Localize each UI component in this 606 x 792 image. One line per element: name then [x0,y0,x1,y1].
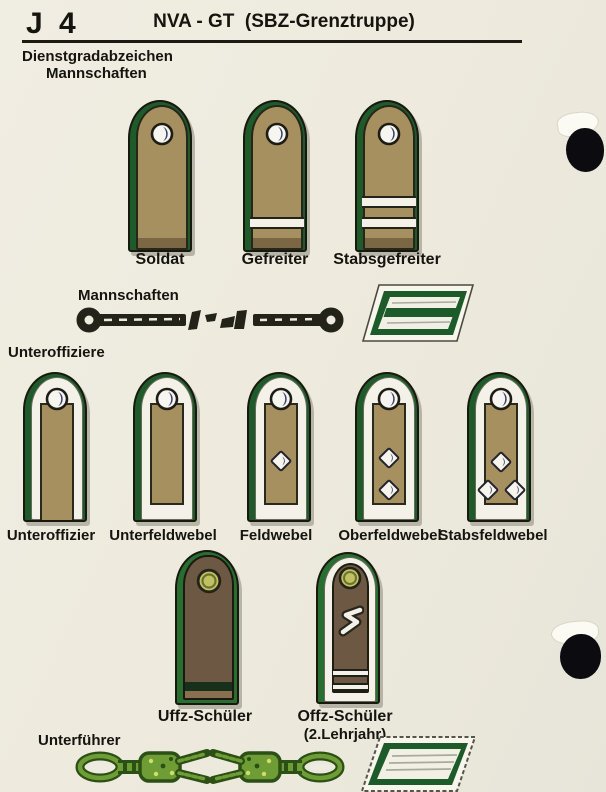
shoulder-board-soldat [128,100,192,252]
board-field [372,403,406,505]
uniform-button-icon [150,122,174,146]
board-field [136,105,188,250]
braid-border [324,557,376,702]
year-stripe [333,669,368,677]
shoulder-cord-dark-icon [76,303,344,337]
rank-label-gefreiter: Gefreiter [215,251,335,269]
rank-label-unterfeldwebel: Unterfeldwebel [98,527,228,544]
board-field [150,403,184,505]
braid-border [255,377,307,520]
rank-stripe [250,217,304,229]
section-label-mannschaften: Mannschaften [78,287,179,304]
year-stripe [333,683,368,691]
shoulder-board-feldwebel [247,372,311,522]
scanned-insignia-page: J 4 NVA - GT (SBZ-Grenztruppe) Dienstgra… [0,0,606,792]
rank-band [185,682,232,691]
rank-pip-icon [376,445,402,471]
braid-border [363,377,415,520]
shoulder-board-unterfeldwebel [133,372,197,522]
knot-cord-green-icon [72,746,348,788]
rank-label-offz-schueler: Offz-Schüler [275,708,415,726]
rank-label-stabsgefreiter: Stabsgefreiter [322,251,452,269]
shoulder-board-offz-schueler [316,552,380,704]
uniform-button-icon [269,387,293,411]
uniform-button-icon [489,387,513,411]
board-field [40,403,74,520]
shoulder-board-unteroffizier [23,372,87,522]
section-label-unteroffiziere: Unteroffiziere [8,344,105,361]
rank-label-stabsfeldwebel: Stabsfeldwebel [428,527,558,544]
braid-border [141,377,193,520]
rank-stripe [362,196,416,208]
rank-pip-icon [376,477,402,503]
uniform-button-icon [338,566,362,590]
rank-label-feldwebel: Feldwebel [211,527,341,544]
rank-pip-icon [268,448,294,474]
board-field [264,403,298,505]
uniform-button-icon [196,568,222,594]
rank-stripe [362,217,416,229]
uniform-button-icon [265,122,289,146]
board-field [484,403,518,505]
board-field [363,105,415,250]
header-rule [22,40,522,43]
board-field [251,105,303,250]
uniform-button-icon [377,122,401,146]
shoulder-board-gefreiter [243,100,307,252]
shoulder-board-oberfeldwebel [355,372,419,522]
rank-pip-icon [502,477,528,503]
rank-label-uffz-schueler: Uffz-Schüler [135,708,275,726]
uniform-button-icon [155,387,179,411]
shoulder-board-stabsfeldwebel [467,372,531,522]
page-title: NVA - GT (SBZ-Grenztruppe) [128,11,440,33]
braid-border [31,377,83,520]
board-field [183,555,234,700]
shoulder-board-stabsgefreiter [355,100,419,252]
page-code: J 4 [26,7,80,41]
punch-hole [566,128,604,172]
collar-patch-enlisted-icon [362,284,474,342]
shoulder-board-uffz-schueler [175,550,239,705]
cipher-s-icon [338,605,364,639]
punch-hole [560,634,601,679]
rank-pip-icon [475,477,501,503]
rank-pip-icon [488,449,514,475]
uniform-button-icon [45,387,69,411]
rank-label-soldat: Soldat [100,251,220,269]
collar-patch-unterfuehrer-icon [361,736,477,792]
uniform-button-icon [377,387,401,411]
braid-border [475,377,527,520]
heading-line1: Dienstgradabzeichen [22,48,173,65]
heading-line2: Mannschaften [46,65,147,82]
